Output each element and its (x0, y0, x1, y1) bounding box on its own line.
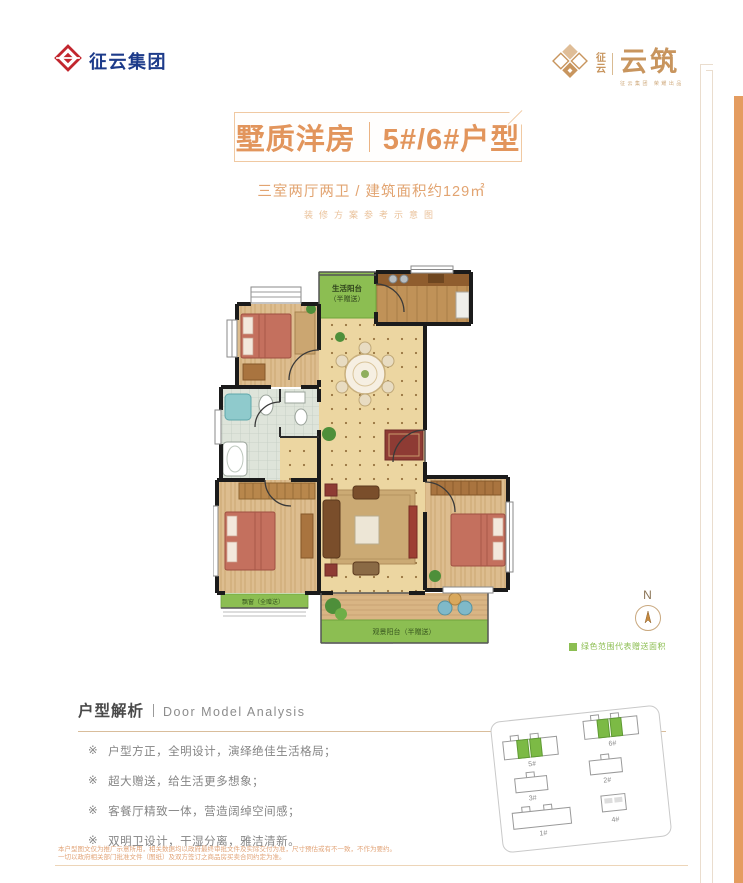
site-plan-map: 5# 6# 3# 2# 1# 4# (490, 704, 673, 853)
project-logo: 征云 云筑 征云集团 荣耀出品 (551, 40, 684, 87)
developer-logo-icon (54, 44, 82, 77)
analysis-heading: 户型解析 Door Model Analysis (78, 699, 305, 721)
title-corner-notch (509, 112, 522, 125)
poster-page: 征云集团 征云 云筑 征云集团 荣耀出品 墅质洋房 5#/6#户型 (0, 0, 743, 883)
bullet-marker: ※ (88, 773, 98, 789)
heading-divider (153, 704, 154, 717)
project-logo-small-text: 征云 (596, 53, 613, 75)
compass-circle (635, 605, 661, 631)
analysis-bullet-list: ※ 户型方正，全明设计，演绎绝佳生活格局； ※ 超大赠送，给生活更多想象； ※ … (88, 743, 336, 863)
compass-north-label: N (634, 588, 662, 602)
building-label: 1# (539, 830, 548, 838)
title-divider (369, 122, 370, 152)
building-label: 4# (611, 816, 620, 824)
decoration-note: 装修方案参考示意图 (0, 208, 743, 221)
list-item: ※ 超大赠送，给生活更多想象； (88, 773, 336, 789)
view-balcony-label: 观景阳台（半赠送） (373, 627, 436, 636)
disclaimer: 本户型图文仅为推广示意所用，相关数据均以政府最终审批文件及实际交付为准，尺寸预估… (58, 846, 668, 862)
list-item: ※ 户型方正，全明设计，演绎绝佳生活格局； (88, 743, 336, 759)
developer-logo: 征云集团 (54, 44, 167, 77)
unit-subtitle: 三室两厅两卫 / 建筑面积约129㎡ (0, 180, 743, 201)
bullet-text: 超大赠送，给生活更多想象； (108, 773, 264, 789)
bullet-marker: ※ (88, 803, 98, 819)
floor-plan-drawing: 生活阳台 （半赠送） 飘窗（全赠送） 观景阳台（半赠送） (213, 262, 608, 647)
north-compass: N (634, 588, 662, 631)
site-plan-drawing: 5# 6# 3# 2# 1# 4# (491, 706, 669, 851)
project-logo-icon (551, 42, 589, 85)
life-balcony-label-line2: （半赠送） (330, 294, 365, 303)
gift-area-legend: 绿色范围代表赠送面积 (569, 641, 666, 652)
disclaimer-line1: 本户型图文仅为推广示意所用，相关数据均以政府最终审批文件及实际交付为准，尺寸预估… (58, 846, 668, 854)
accent-side-bar (734, 96, 743, 883)
building-label: 5# (528, 761, 537, 769)
bullet-text: 户型方正，全明设计，演绎绝佳生活格局； (108, 743, 336, 759)
life-balcony-label-line1: 生活阳台 (332, 283, 362, 293)
building-label: 2# (603, 777, 612, 785)
bullet-text: 客餐厅精致一体，营造阔绰空间感； (108, 803, 300, 819)
legend-green-swatch (569, 643, 577, 651)
unit-title-box: 墅质洋房 5#/6#户型 (234, 112, 522, 162)
analysis-heading-cn: 户型解析 (78, 699, 144, 721)
disclaimer-line2: 一切以政府相关部门批准文件（图纸）及双方签订之商品房买卖合同约定为准。 (58, 854, 668, 862)
bullet-marker: ※ (88, 743, 98, 759)
analysis-heading-en: Door Model Analysis (163, 705, 305, 719)
building-label: 6# (608, 740, 617, 748)
project-logo-tagline: 征云集团 荣耀出品 (620, 80, 684, 87)
frame-line-inner (712, 70, 713, 883)
footer-divider-line (55, 865, 688, 866)
developer-logo-text: 征云集团 (89, 48, 167, 74)
floor-plan: 生活阳台 （半赠送） 飘窗（全赠送） 观景阳台（半赠送） (213, 262, 608, 652)
project-logo-main-text: 云筑 (620, 40, 684, 79)
unit-title-right: 5#/6#户型 (383, 116, 521, 158)
compass-needle-icon (640, 610, 656, 626)
frame-line-connector2 (706, 70, 713, 71)
legend-text: 绿色范围代表赠送面积 (581, 641, 666, 652)
list-item: ※ 客餐厅精致一体，营造阔绰空间感； (88, 803, 336, 819)
bay-window-label: 飘窗（全赠送） (242, 598, 284, 606)
unit-title-left: 墅质洋房 (236, 116, 356, 158)
frame-line-connector (700, 64, 713, 65)
building-label: 3# (529, 795, 538, 803)
frame-line-outer (700, 64, 701, 883)
